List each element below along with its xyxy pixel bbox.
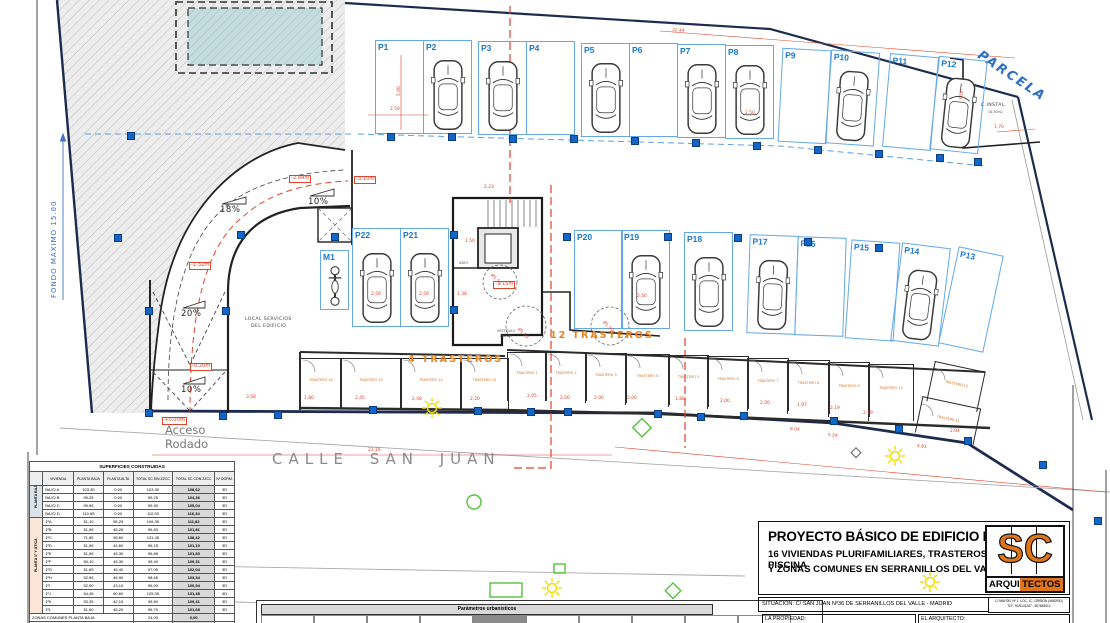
table-cell: 0,00 [103, 510, 133, 518]
parking-space-p2: P2 [423, 40, 472, 134]
slope-label: 20% [181, 310, 201, 319]
parking-space-p5: P5 [581, 43, 630, 137]
column-header: TOTAL SC CON ZZCC [173, 472, 215, 486]
car-icon [431, 58, 465, 132]
table-cell: 101,10 [173, 542, 215, 550]
table-cell: 45,30 [103, 558, 133, 566]
storage-room-label: TRASTERO 5 [669, 375, 708, 379]
storage-room-label: TRASTERO 2 [546, 371, 586, 375]
parking-space-p8: P8 [725, 45, 774, 139]
table-cell: 45,90 [103, 574, 133, 582]
column-marker [145, 409, 153, 417]
dimension-label: 2.20 [470, 398, 480, 403]
column-marker [331, 233, 339, 241]
parking-space-label: P9 [783, 49, 831, 63]
column-marker [631, 137, 639, 145]
dimension-label: 2.00 [560, 397, 570, 402]
table-cell: 108,62 [173, 486, 215, 494]
table-cell: 100,31 [173, 558, 215, 566]
parking-space-p3: P3 [478, 41, 527, 135]
table-cell: 131,48 [173, 590, 215, 598]
table-cell: 59,60 [103, 534, 133, 542]
parking-space-label: P18 [685, 233, 732, 245]
parametros-table: Parámetros urbanísticos [256, 600, 823, 623]
car-icon [629, 253, 663, 327]
car-icon [733, 63, 767, 137]
parking-space-p4: P4 [526, 41, 575, 135]
parking-space-label: P1 [376, 41, 423, 53]
parking-space-label: P17 [750, 235, 797, 249]
table-cell: BAJO D [43, 510, 74, 518]
table-cell: 110,93 [133, 510, 173, 518]
car-icon [685, 62, 719, 136]
street-name-label: CALLE SAN JUAN [272, 450, 501, 468]
slope-label: 10% [181, 386, 201, 395]
table-cell: 99,95 [74, 502, 104, 510]
column-marker [509, 135, 517, 143]
table-cell: 51,50 [74, 606, 104, 614]
table-cell: 99,25 [133, 494, 173, 502]
parametros-cells [261, 615, 791, 623]
parking-space-m1: M1 [320, 250, 349, 310]
storage-room-label: TRASTERO 6 [708, 377, 748, 381]
parking-space-p12: P12 [929, 56, 988, 155]
table-cell: 3D [215, 558, 235, 566]
manhole-icon [851, 448, 861, 458]
table-cell: 3D [215, 518, 235, 526]
dimension-label: 2.45 [355, 397, 365, 402]
architect-contact: C/ MAYOR, Nº 1, LOC. 1C, GRIÑÓN (MADRID)… [988, 597, 1070, 613]
table-cell: 4D [215, 590, 235, 598]
table-cell: 1ºA [43, 518, 74, 526]
column-marker [114, 234, 122, 242]
table-cell: 42,15 [103, 598, 133, 606]
storage-room-label: TRASTERO 7 [748, 379, 788, 383]
plan-annotation: C.INSTAL. [981, 103, 1007, 108]
column-marker [875, 150, 883, 158]
parking-space-label: P4 [527, 42, 574, 54]
table-cell: 125,05 [133, 590, 173, 598]
dimension-label: 2.00 [627, 397, 637, 402]
table-cell: 51,10 [74, 518, 104, 526]
sc-arquitectos-logo: SC ARQUI TECTOS [985, 525, 1065, 593]
table-cell: 1ºI [43, 582, 74, 590]
table-cell: 3D [215, 534, 235, 542]
table-cell: 95,40 [133, 558, 173, 566]
dimension-label: 1.88 [675, 398, 685, 403]
parking-space-p20: P20 [574, 230, 623, 329]
storage-room-label: TRASTERO 15 [341, 378, 401, 382]
slope-triangles [183, 189, 334, 384]
column-marker [964, 437, 972, 445]
level-annotation: -1.32m [189, 262, 211, 270]
table-cell: 111,82 [173, 518, 215, 526]
column-marker [527, 408, 535, 416]
plan-annotation: 10,50m2 [988, 111, 1003, 115]
plan-annotation: 12 TRASTEROS [550, 331, 654, 341]
storage-room-label: TRASTERO 1 [508, 371, 546, 375]
column-header: VIVIENDA [43, 472, 74, 486]
parking-space-label: P7 [678, 45, 725, 57]
storage-room: TRASTERO 15 [340, 358, 402, 409]
dimension-label: 2.50 [371, 293, 381, 298]
storage-room: TRASTERO 13 [460, 358, 509, 409]
column-marker [1094, 517, 1102, 525]
storage-room: TRASTERO 14 [400, 358, 462, 409]
table-cell: 71,85 [74, 534, 104, 542]
table-cell: 55,25 [103, 518, 133, 526]
table-cell: 52,95 [74, 574, 104, 582]
dimension-label: 2.50 [745, 112, 755, 117]
column-marker [1039, 461, 1047, 469]
table-cell: 103,34 [173, 574, 215, 582]
storage-room-label: TRASTERO 4 [626, 374, 669, 378]
car-icon [832, 68, 871, 144]
table-cell [215, 614, 235, 622]
parking-space-label: P19 [622, 231, 669, 243]
level-annotation: -0.20m [190, 363, 212, 371]
column-marker [145, 307, 153, 315]
level-annotation: -2.84m [289, 175, 311, 183]
storage-room: TRASTERO 8 [787, 360, 830, 414]
dimension-label: 5.24 [828, 434, 838, 440]
column-marker [654, 410, 662, 418]
column-marker [570, 135, 578, 143]
storage-room-label: TRASTERO 13 [461, 378, 508, 382]
parking-space-label: P2 [424, 41, 471, 53]
dimension-label: 2.48 [412, 398, 422, 403]
table-cell: 3D [215, 510, 235, 518]
table-cell: 96,83 [133, 526, 173, 534]
table-cell: 102,04 [173, 566, 215, 574]
parking-space-label: P3 [479, 42, 526, 54]
dimension-label: 32.44 [672, 29, 685, 35]
level-annotation: +0.00m [162, 417, 187, 425]
table-cell: 60,60 [103, 590, 133, 598]
table-cell: 1ºH [43, 574, 74, 582]
table-cell: 52,90 [74, 582, 104, 590]
table-cell: 51,55 [74, 526, 104, 534]
table-cell: 24,00 [133, 614, 173, 622]
table-cell: 96,00 [133, 582, 173, 590]
column-marker [369, 406, 377, 414]
table-cell: 96,85 [133, 550, 173, 558]
table-cell: 51,65 [74, 566, 104, 574]
column-marker [804, 238, 812, 246]
column-marker [563, 233, 571, 241]
dimension-label: 21.19 [368, 449, 381, 454]
table-cell: BAJO B [43, 494, 74, 502]
column-marker [734, 234, 742, 242]
column-marker [753, 142, 761, 150]
column-header: Nº DORM. [215, 472, 235, 486]
table-cell: 131,45 [133, 534, 173, 542]
group-label: PLANTA 1ª Y ÁTICA [30, 518, 43, 614]
dimension-label: 3.50 [960, 90, 966, 100]
table-cell: 1ºE [43, 550, 74, 558]
plan-annotation: LOCAL SERVICIOS [245, 317, 292, 322]
table-cell: 105,04 [173, 502, 215, 510]
slope-label: 18% [220, 206, 240, 215]
storage-room: TRASTERO 3 [585, 353, 627, 403]
dimension-label: 2.00 [720, 400, 730, 405]
table-cell: 96,15 [133, 542, 173, 550]
car-icon [486, 59, 520, 133]
dimension-label: 4.83 [916, 445, 926, 451]
table-cell: 3D [215, 606, 235, 614]
storage-room: TRASTERO 10 [868, 364, 914, 421]
table-cell: 1ºB [43, 526, 74, 534]
dimension-label: 2.00 [594, 397, 604, 402]
parking-space-label: P22 [353, 229, 400, 241]
table-cell: 101,81 [173, 526, 215, 534]
table-cell: 3D [215, 542, 235, 550]
parking-space-label: P8 [726, 46, 773, 58]
dimension-label: 2.00 [760, 402, 770, 407]
table-cell: 3D [215, 526, 235, 534]
table-cell: 0,00 [173, 614, 215, 622]
table-cell: 103,30 [74, 486, 104, 494]
dimension-label: 3.58 [246, 396, 256, 401]
table-cell: 45,20 [103, 606, 133, 614]
column-marker [875, 244, 883, 252]
table-cell: 50,10 [74, 558, 104, 566]
table-cell: 51,55 [74, 542, 104, 550]
plan-annotation: DEL EDIFICIO [251, 324, 286, 329]
table-cell: 1ºL [43, 606, 74, 614]
dimension-label: 1.50 [465, 240, 475, 245]
column-marker [448, 133, 456, 141]
column-header: PLANTA BAJA [74, 472, 104, 486]
table-cell: 138,42 [173, 534, 215, 542]
arquitecto-field: EL ARQUITECTO: [918, 614, 1070, 623]
car-icon [692, 255, 726, 329]
car-icon [898, 266, 941, 344]
parking-space-p18: P18 [684, 232, 733, 331]
table-cell: 45,40 [103, 566, 133, 574]
table-cell: 1ºK [43, 598, 74, 606]
level-annotation: -3.10m [354, 176, 376, 184]
table-cell: 45,30 [103, 550, 133, 558]
table-cell: 3D [215, 494, 235, 502]
car-icon [754, 257, 791, 332]
project-title-line1: PROYECTO BÁSICO DE EDIFICIO DE [768, 529, 1001, 544]
table-cell: 45,28 [103, 526, 133, 534]
table-cell: 103,30 [133, 486, 173, 494]
table-cell: 110,65 [74, 510, 104, 518]
column-header: TOTAL SC SIN ZZCC [133, 472, 173, 486]
group-label: PLANTA BAJA [30, 486, 43, 518]
column-header: PLANTA ALTA [103, 472, 133, 486]
table-cell: 44,60 [103, 542, 133, 550]
parking-space-label: P11 [890, 54, 938, 70]
column-marker [237, 231, 245, 239]
parking-space-label: P6 [630, 44, 677, 56]
dimension-label: 2.05 [527, 395, 537, 400]
parking-space-p7: P7 [677, 44, 726, 138]
parking-space-p6: P6 [629, 43, 678, 137]
storage-room-label: TRASTERO 12 [932, 377, 982, 391]
table-cell: 1ºF [43, 558, 74, 566]
column-marker [692, 139, 700, 147]
dimension-label: 8.04 [790, 428, 800, 434]
table-cell: 106,35 [133, 518, 173, 526]
table-cell: 1ºD [43, 542, 74, 550]
table-cell: 101,68 [173, 606, 215, 614]
column-marker [219, 412, 227, 420]
table-cell: 51,55 [74, 550, 104, 558]
dimension-label: 2.19 [863, 412, 873, 417]
fondo-maximo-label: FONDO MÁXIMO 15.00 [50, 201, 58, 298]
dimension-label: 2.50 [390, 108, 400, 113]
dimension-label: 2.23 [484, 186, 494, 191]
superficies-title: SUPERFICIES CONSTRUIDAS [30, 462, 235, 472]
parking-space-p9: P9 [778, 48, 832, 144]
dimension-label: 5.00 [398, 86, 403, 96]
superficies-table: SUPERFICIES CONSTRUIDASVIVIENDAPLANTA BA… [29, 461, 235, 623]
storage-room-label: TRASTERO 9 [829, 384, 869, 388]
column-marker [740, 412, 748, 420]
column-marker [474, 407, 482, 415]
table-cell: 1ºJ [43, 590, 74, 598]
table-cell: 1ºG [43, 566, 74, 574]
situacion-field: SITUACIÓN: C/ SAN JUAN Nº36 DE SERRANILL… [758, 597, 989, 612]
table-cell: 1ºC [43, 534, 74, 542]
table-cell: 99,25 [74, 494, 104, 502]
table-cell [30, 472, 43, 486]
parking-space-p10: P10 [825, 49, 880, 146]
title-block-main: PROYECTO BÁSICO DE EDIFICIO DE 16 VIVIEN… [758, 521, 1070, 595]
table-cell: 97,05 [133, 566, 173, 574]
table-cell: 96,70 [133, 606, 173, 614]
storage-room-label: TRASTERO 16 [301, 378, 341, 382]
column-marker [814, 146, 822, 154]
column-marker [974, 158, 982, 166]
slope-label: 10% [308, 198, 328, 207]
dimension-label: 2.50 [637, 295, 647, 300]
storage-room-label: TRASTERO 10 [869, 386, 913, 390]
dimension-label: 1.70 [994, 126, 1004, 131]
car-icon [589, 61, 623, 135]
column-marker [450, 306, 458, 314]
logo-sc-letters: SC [987, 527, 1063, 574]
column-marker [127, 132, 135, 140]
parking-space-label: P20 [575, 231, 622, 243]
storage-room-label: TRASTERO 14 [401, 378, 461, 382]
table-cell: 104,36 [173, 494, 215, 502]
access-label: Acceso Rodado [165, 424, 208, 452]
table-cell: 3D [215, 574, 235, 582]
storage-room-label: TRASTERO 8 [788, 381, 829, 385]
table-cell: BAJO A [43, 486, 74, 494]
table-cell: 98,65 [133, 574, 173, 582]
logo-arquitectos-bar: ARQUI TECTOS [987, 576, 1063, 591]
storage-room: TRASTERO 2 [545, 352, 587, 401]
table-cell: 100,94 [173, 582, 215, 590]
column-marker [450, 231, 458, 239]
table-cell: 3D [215, 582, 235, 590]
table-cell: 0,00 [103, 494, 133, 502]
table-cell: 95,50 [133, 598, 173, 606]
parking-space-label: P10 [831, 50, 879, 65]
dimension-label: 2.19 [830, 407, 840, 412]
parametros-title: Parámetros urbanísticos [261, 604, 713, 615]
pool [188, 8, 322, 65]
table-cell: 99,90 [133, 502, 173, 510]
dimension-label: 2.50 [419, 293, 429, 298]
title-block: PROYECTO BÁSICO DE EDIFICIO DE 16 VIVIEN… [756, 517, 1070, 623]
dimension-label: 1.80 [304, 397, 314, 402]
table-cell: 116,34 [173, 510, 215, 518]
table-cell: 43,10 [103, 582, 133, 590]
fondo-dim-line [61, 134, 66, 300]
table-cell: 101,83 [173, 550, 215, 558]
site-plan: CALLE SAN JUAN Acceso Rodado PARCELA FON… [0, 0, 1110, 623]
storage-room-label: TRASTERO 11 [920, 411, 978, 427]
dimension-label: 2.04 [950, 430, 960, 435]
column-marker [274, 411, 282, 419]
column-marker [936, 154, 944, 162]
storage-room-label: TRASTERO 3 [586, 373, 626, 377]
parking-space-p22: P22 [352, 228, 401, 327]
parking-space-label: P21 [401, 229, 448, 241]
parking-space-label: P12 [939, 57, 987, 74]
table-cell: 0,00 [103, 502, 133, 510]
plan-annotation: ASEO [459, 262, 468, 266]
parking-space-p21: P21 [400, 228, 449, 327]
parking-space-label: M1 [321, 251, 348, 263]
footer-label: ZONAS COMUNES PLANTA BAJA [30, 614, 134, 622]
column-marker [387, 133, 395, 141]
table-cell: 100,41 [173, 598, 215, 606]
parking-space-p16: P16 [794, 236, 846, 337]
car-icon [408, 251, 442, 325]
plan-annotation: 4 TRASTEROS [408, 355, 503, 365]
table-cell: 53,35 [74, 598, 104, 606]
column-marker [664, 233, 672, 241]
table-cell: 64,45 [74, 590, 104, 598]
table-cell: 0,00 [103, 486, 133, 494]
table-cell: 3D [215, 598, 235, 606]
column-marker [830, 417, 838, 425]
plan-annotation: PREVIO [500, 335, 512, 339]
column-marker [895, 425, 903, 433]
motorcycle-icon [326, 264, 344, 308]
car-icon [937, 74, 979, 151]
column-marker [564, 408, 572, 416]
parking-space-p17: P17 [746, 234, 798, 335]
table-cell: 3D [215, 502, 235, 510]
table-cell: BAJO C [43, 502, 74, 510]
parking-space-p19: P19 [621, 230, 670, 329]
column-marker [697, 413, 705, 421]
parking-space-label: P5 [582, 44, 629, 56]
car-icon [360, 251, 394, 325]
table-cell: 3D [215, 550, 235, 558]
propiedad-field: LA PROPIEDAD: [762, 614, 916, 623]
table-cell: 3D [215, 486, 235, 494]
table-cell: 3D [215, 566, 235, 574]
column-marker [222, 307, 230, 315]
dimension-label: 1.38 [457, 293, 467, 298]
dimension-label: 1.97 [797, 404, 807, 409]
